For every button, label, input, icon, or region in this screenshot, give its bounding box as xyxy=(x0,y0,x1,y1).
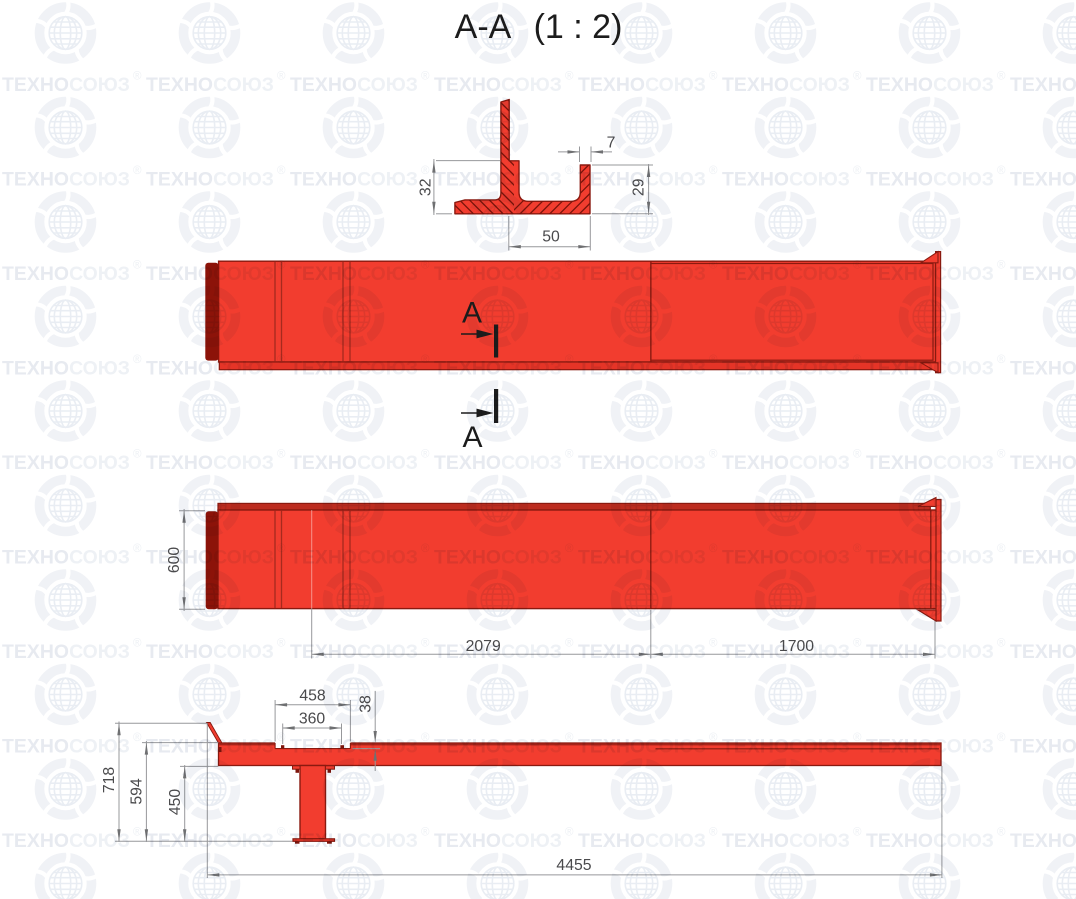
svg-text:594: 594 xyxy=(129,778,146,805)
svg-text:458: 458 xyxy=(299,688,326,705)
svg-text:50: 50 xyxy=(542,229,560,246)
svg-text:4455: 4455 xyxy=(556,857,591,874)
svg-text:32: 32 xyxy=(418,179,435,197)
svg-text:(1 : 2): (1 : 2) xyxy=(534,8,623,46)
svg-text:360: 360 xyxy=(299,711,326,728)
svg-text:718: 718 xyxy=(101,767,118,794)
